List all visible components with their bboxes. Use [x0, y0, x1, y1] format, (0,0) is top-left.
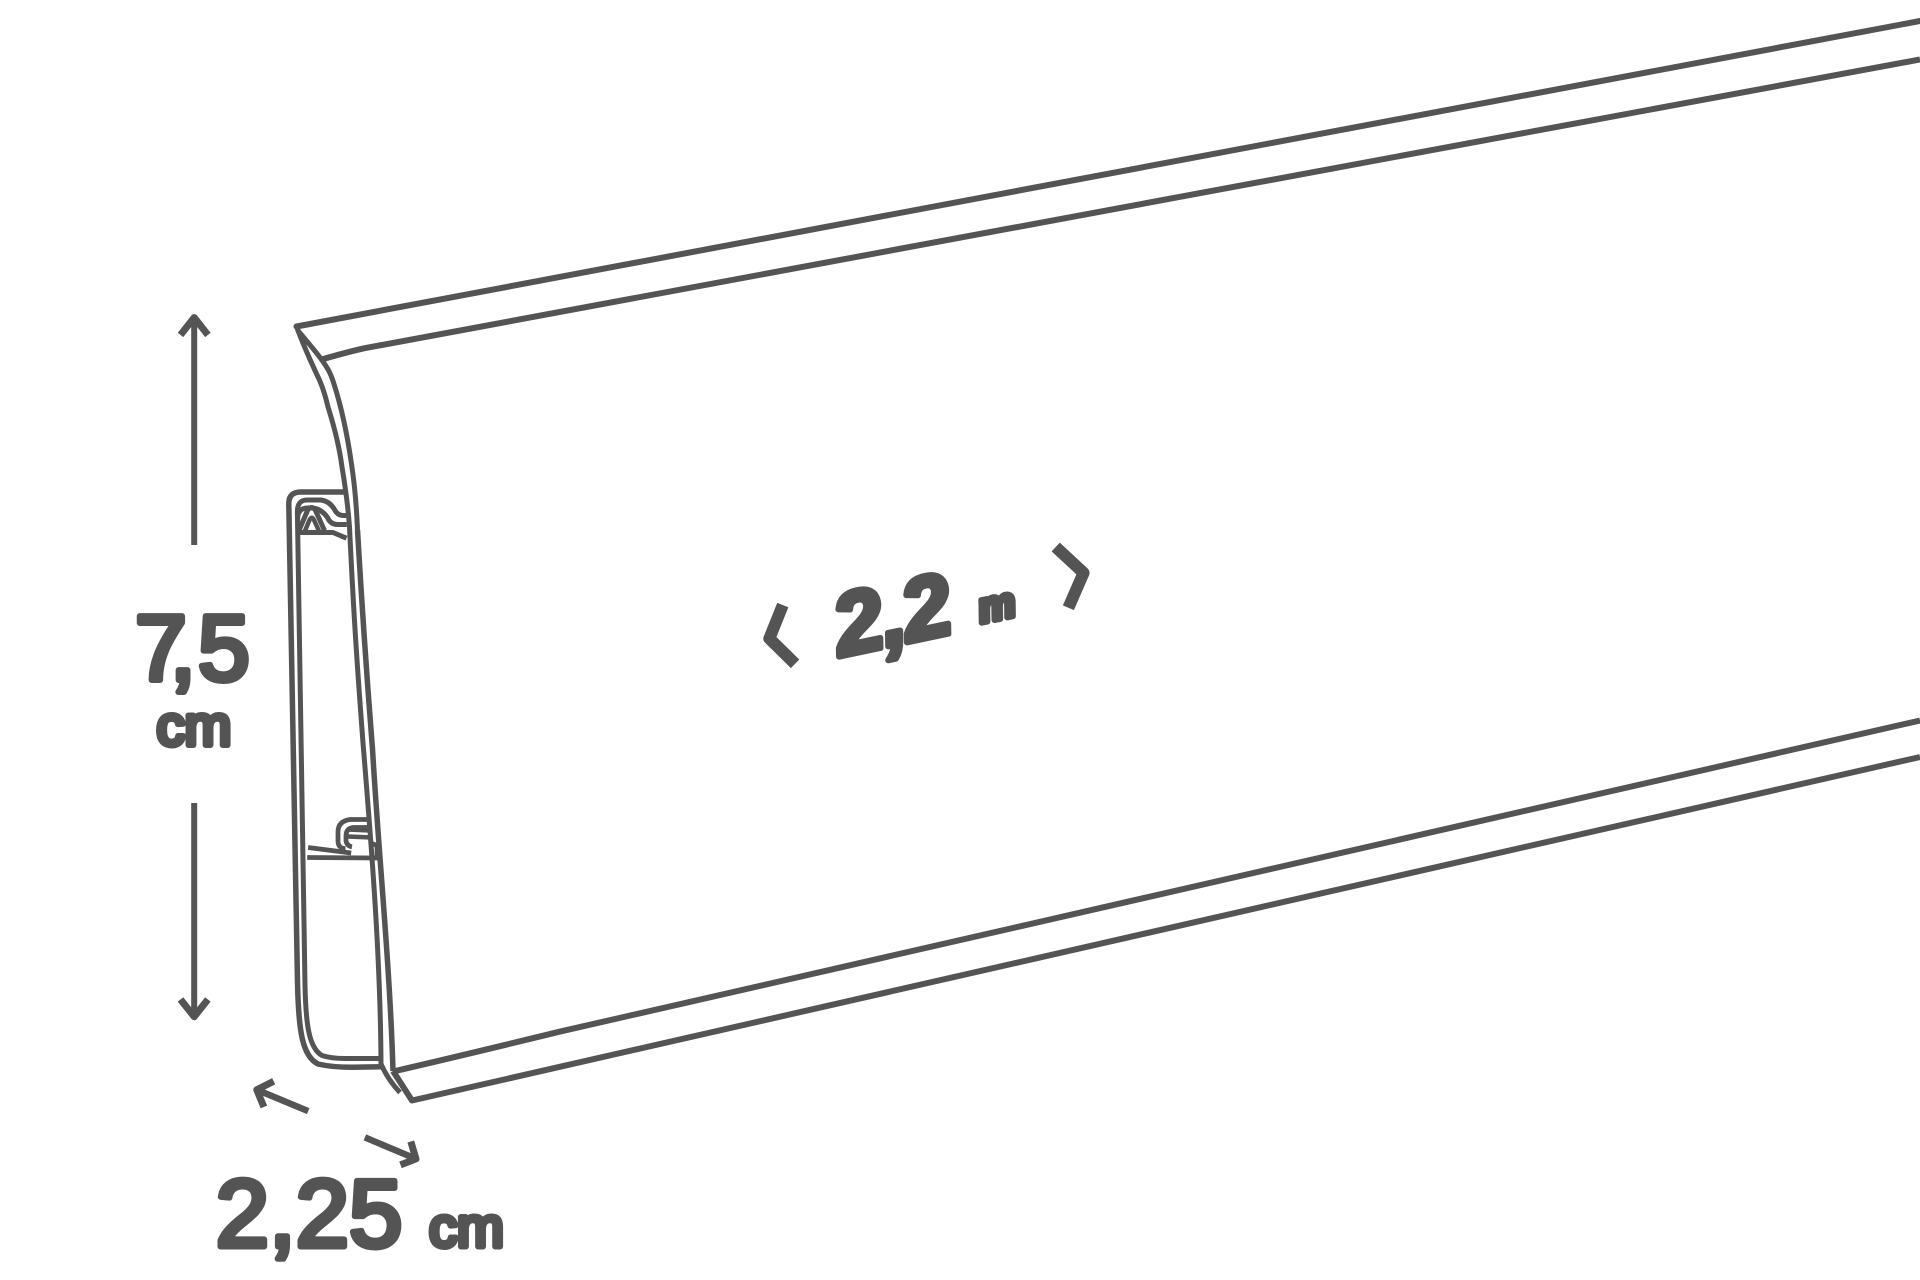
svg-text:2,25: 2,25	[216, 1161, 403, 1268]
svg-text:m: m	[973, 578, 1019, 632]
svg-text:cm: cm	[429, 1196, 504, 1259]
svg-text:cm: cm	[157, 694, 232, 757]
svg-text:,: ,	[170, 596, 196, 700]
svg-text:2,2: 2,2	[822, 554, 960, 676]
svg-text:5: 5	[198, 596, 250, 700]
